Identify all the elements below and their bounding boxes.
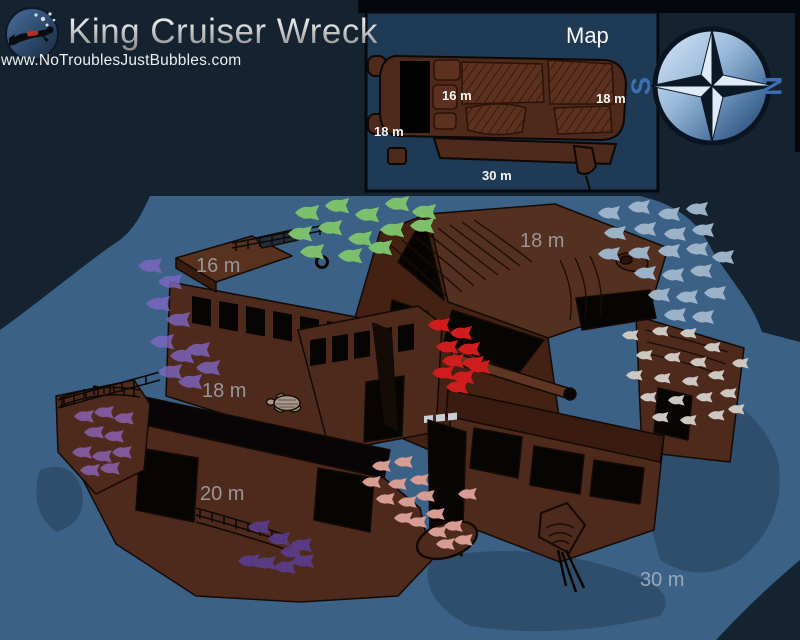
map-inset: Map (366, 12, 658, 191)
compass-north-label: N (757, 76, 787, 96)
right-black-edge (795, 0, 800, 152)
map-inset-title: Map (566, 23, 609, 48)
map-label-18m-right: 18 m (596, 91, 626, 106)
map-label-30m: 30 m (482, 168, 512, 183)
depth-label-20m: 20 m (200, 483, 244, 505)
map-label-16m: 16 m (442, 88, 472, 103)
depth-label-30m: 30 m (640, 569, 684, 591)
compass-south-label: S (626, 77, 656, 95)
map-label-18m-left: 18 m (374, 124, 404, 139)
dive-site-poster: 16 m 18 m 18 m 20 m 30 m Map (0, 0, 800, 640)
depth-label-18m-deck: 18 m (202, 380, 246, 402)
depth-label-18m-stern: 18 m (520, 230, 564, 252)
depth-label-16m: 16 m (196, 255, 240, 277)
website-link[interactable]: www.NoTroublesJustBubbles.com (1, 52, 241, 70)
underwater-scene: 16 m 18 m 18 m 20 m 30 m Map (0, 0, 800, 640)
